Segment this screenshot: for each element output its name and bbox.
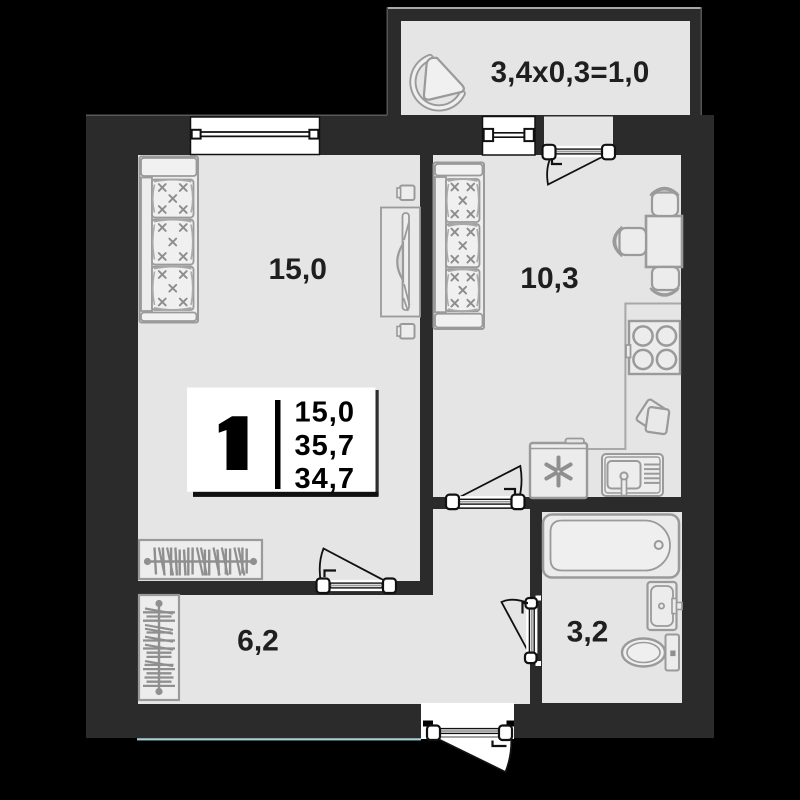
svg-text:3,4х0,3=1,0: 3,4х0,3=1,0 bbox=[491, 56, 650, 89]
svg-text:34,7: 34,7 bbox=[295, 463, 355, 495]
svg-text:10,3: 10,3 bbox=[520, 262, 578, 295]
svg-text:15,0: 15,0 bbox=[295, 397, 355, 429]
svg-text:6,2: 6,2 bbox=[237, 625, 279, 658]
svg-text:35,7: 35,7 bbox=[295, 430, 355, 462]
svg-text:15,0: 15,0 bbox=[269, 253, 327, 286]
svg-text:3,2: 3,2 bbox=[567, 616, 609, 649]
